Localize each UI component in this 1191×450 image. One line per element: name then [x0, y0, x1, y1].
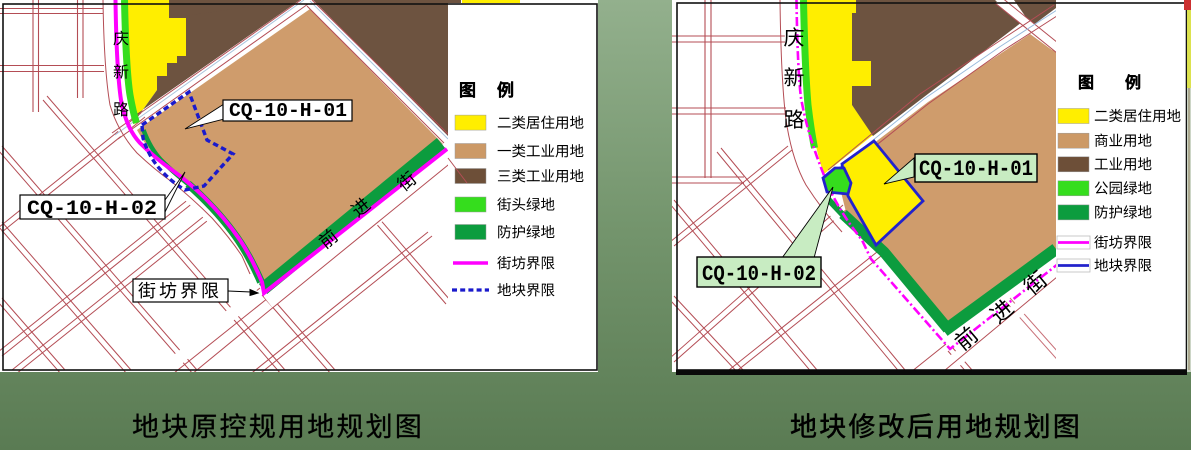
svg-text:CQ-10-H-02: CQ-10-H-02 [702, 262, 816, 287]
svg-text:CQ-10-H-02: CQ-10-H-02 [27, 198, 157, 221]
svg-text:CQ-10-H-01: CQ-10-H-01 [229, 100, 347, 122]
svg-text:CQ-10-H-01: CQ-10-H-01 [919, 157, 1033, 182]
